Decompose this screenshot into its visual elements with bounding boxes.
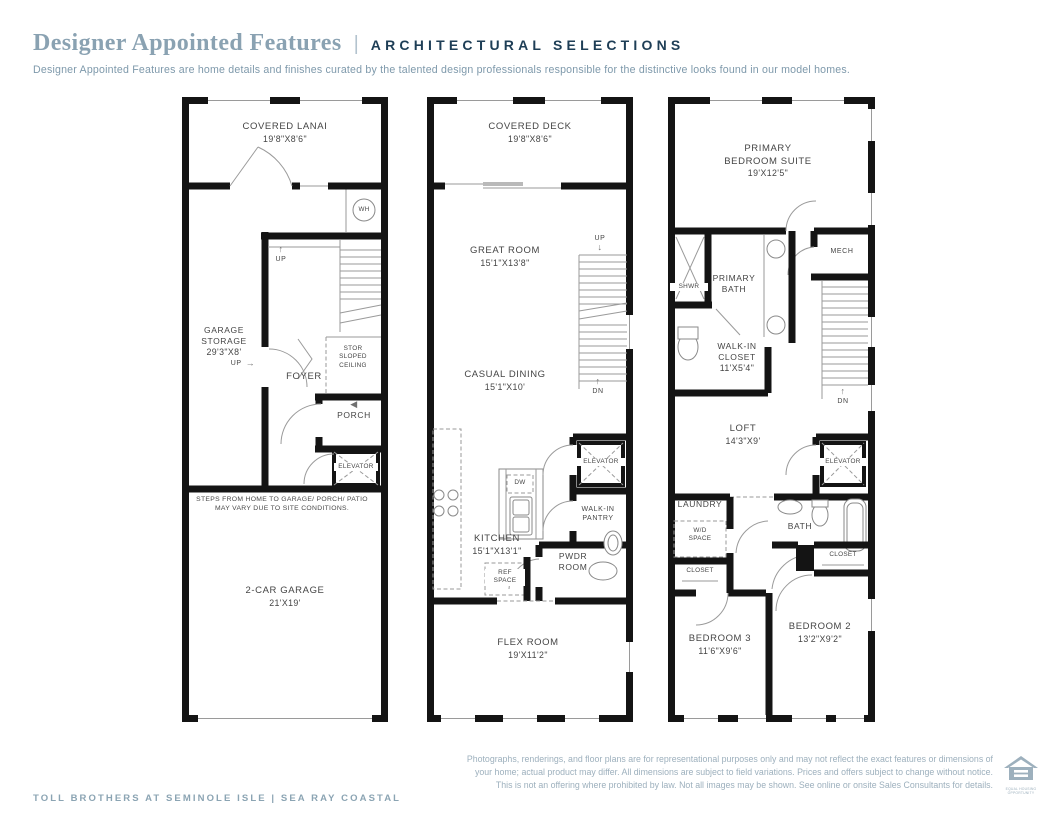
entry-up-label: UP →	[222, 359, 264, 369]
up-arrow-icon: ↑	[266, 245, 296, 255]
room-label-foyer: FOYER	[274, 371, 334, 384]
room-label-mech: MECH	[816, 247, 868, 256]
up-arrow-icon: ↑	[583, 377, 613, 387]
stair-dn-label: ↑ DN	[828, 387, 858, 406]
floor2-drawing	[427, 97, 633, 722]
room-label-elevator: ELEVATOR	[334, 463, 378, 471]
up-arrow-icon: ↑	[828, 387, 858, 397]
footer-disclaimer: Photographs, renderings, and floor plans…	[467, 753, 993, 791]
room-label-casual-dining: CASUAL DINING 15'1"X10'	[443, 369, 567, 393]
disclaimer-line3: This is not an offering where prohibited…	[467, 779, 993, 792]
right-arrow-icon: →	[246, 359, 256, 369]
room-label-shwr: SHWR	[670, 283, 708, 291]
stair-up-label: UP ↓	[585, 234, 615, 253]
room-label-walk-in-pantry: WALK-IN PANTRY	[569, 505, 627, 523]
room-label-closet-left: CLOSET	[676, 567, 724, 575]
stair-up-label: ↑ UP	[266, 245, 296, 264]
header: Designer Appointed Features | ARCHITECTU…	[33, 30, 684, 57]
footer-left: TOLL BROTHERS AT SEMINOLE ISLE | SEA RAY…	[33, 756, 420, 815]
footer-community: TOLL BROTHERS AT SEMINOLE ISLE | SEA RAY…	[33, 790, 420, 807]
room-label-primary-bath: PRIMARY BATH	[704, 273, 764, 295]
room-label-bath: BATH	[772, 521, 828, 532]
equal-housing-logo: EQUAL HOUSING OPPORTUNITY	[1001, 756, 1041, 795]
room-label-garage-storage: GARAGE STORAGE 29'3"X8'	[184, 325, 264, 359]
floor2-plan: COVERED DECK 19'8"X8'6" GREAT ROOM 15'1"…	[427, 97, 633, 722]
room-label-walk-in-closet: WALK-IN CLOSET 11'X5'4"	[704, 341, 770, 375]
room-label-great-room: GREAT ROOM 15'1"X13'8"	[447, 245, 563, 269]
wd-space-label: W/D SPACE	[676, 527, 724, 544]
room-label-flex-room: FLEX ROOM 19'X11'2"	[463, 637, 593, 661]
water-heater-label: WH	[353, 206, 375, 213]
room-label-closet-right: CLOSET	[820, 551, 866, 559]
room-dims: 19'8"X8'6"	[182, 134, 388, 146]
ref-space-label: REF SPACE	[485, 569, 525, 586]
title-divider: |	[354, 33, 359, 56]
stair-dn-label: ↑ DN	[583, 377, 613, 396]
disclaimer-line2: your home; actual product may differ. Al…	[467, 766, 993, 779]
equal-housing-caption: EQUAL HOUSING OPPORTUNITY	[1001, 787, 1041, 795]
porch-pointer-icon: ◀	[328, 400, 380, 410]
room-label-loft: LOFT 14'3"X9'	[706, 423, 780, 447]
floor-plan-sheet: Designer Appointed Features | ARCHITECTU…	[0, 0, 1055, 815]
room-label-elevator: ELEVATOR	[820, 458, 866, 466]
room-label-garage: 2-CAR GARAGE 21'X19'	[210, 585, 360, 609]
floor1-plan: COVERED LANAI 19'8"X8'6" WH ↑ UP GARAGE …	[182, 97, 388, 722]
header-description: Designer Appointed Features are home det…	[33, 64, 850, 76]
room-name: COVERED LANAI	[182, 121, 388, 134]
room-label-covered-deck: COVERED DECK 19'8"X8'6"	[427, 121, 633, 145]
floor3-plan: PRIMARY BEDROOM SUITE 19'X12'5" SHWR PRI…	[668, 97, 875, 722]
room-label-covered-lanai: COVERED LANAI 19'8"X8'6"	[182, 121, 388, 145]
site-note: STEPS FROM HOME TO GARAGE/ PORCH/ PATIO …	[190, 496, 374, 514]
down-arrow-icon: ↓	[585, 243, 615, 253]
room-label-bedroom3: BEDROOM 3 11'6"X9'6"	[674, 633, 766, 657]
room-label-porch: ◀ PORCH	[328, 400, 380, 421]
room-label-bedroom2: BEDROOM 2 13'2"X9'2"	[774, 621, 866, 645]
page-title: Designer Appointed Features	[33, 30, 342, 57]
room-label-laundry: LAUNDRY	[670, 499, 730, 510]
room-label-primary-suite: PRIMARY BEDROOM SUITE 19'X12'5"	[698, 143, 838, 180]
room-label-kitchen: KITCHEN 15'1"X13'1"	[441, 533, 553, 557]
room-label-elevator: ELEVATOR	[577, 458, 625, 466]
room-label-pwdr-room: PWDR ROOM	[545, 551, 601, 573]
disclaimer-line1: Photographs, renderings, and floor plans…	[467, 753, 993, 766]
room-label-stor-closet: STOR SLOPED CEILING	[328, 345, 378, 370]
dishwasher-label: DW	[507, 479, 533, 487]
page-subtitle: ARCHITECTURAL SELECTIONS	[371, 37, 685, 53]
equal-housing-house-icon	[1004, 756, 1038, 782]
